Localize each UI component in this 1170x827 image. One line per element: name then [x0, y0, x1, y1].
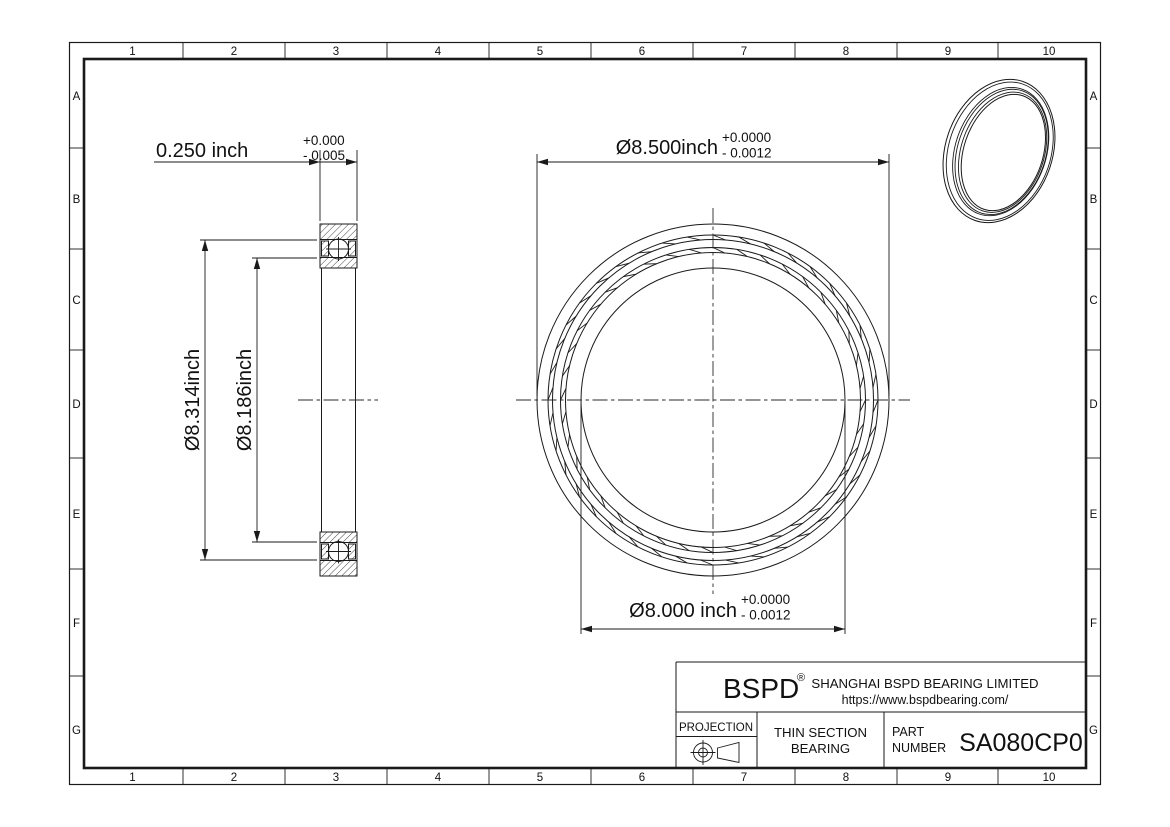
grid-row-label-left: E — [73, 509, 81, 521]
outer-diameter-lower-tolerance: - 0.0012 — [722, 146, 772, 161]
third-angle-projection-icon — [691, 740, 740, 765]
grid-row-label-left: G — [72, 725, 81, 737]
outer-raceway-text: Ø8.314inch — [182, 349, 204, 451]
width-lower-tolerance: - 0.005 — [303, 148, 345, 163]
isometric-view — [924, 64, 1073, 238]
outer-diameter-upper-tolerance: +0.0000 — [722, 130, 771, 145]
grid-column-label-top: 10 — [1043, 46, 1056, 58]
grid-row-label-left: B — [73, 194, 81, 206]
grid-row-label-left: F — [73, 618, 80, 630]
grid-row-label-right: A — [1090, 91, 1098, 103]
inner-raceway-text: Ø8.186inch — [234, 349, 256, 451]
grid-column-label-top: 6 — [639, 46, 645, 58]
product-type-line1: THIN SECTION — [774, 725, 867, 740]
drawing-canvas: 1122334455667788991010AABBCCDDEEFFGG — [0, 0, 1170, 827]
title-block: BSPD ® SHANGHAI BSPD BEARING LIMITED htt… — [676, 662, 1086, 768]
grid-column-label-bottom: 10 — [1043, 772, 1056, 784]
projection-label: PROJECTION — [679, 722, 753, 734]
grid-column-label-top: 7 — [741, 46, 747, 58]
company-website: https://www.bspdbearing.com/ — [842, 693, 1009, 707]
grid-column-label-bottom: 9 — [945, 772, 951, 784]
arrowhead — [581, 626, 592, 632]
ring-shoulder — [349, 241, 356, 256]
arrowhead — [202, 240, 208, 251]
grid-column-label-top: 1 — [129, 46, 135, 58]
grid-row-label-right: F — [1090, 618, 1097, 630]
registered-trademark-symbol: ® — [797, 672, 805, 684]
front-view — [516, 208, 910, 594]
part-number-value: SA080CP0 — [959, 729, 1083, 757]
grid-row-label-right: G — [1089, 725, 1098, 737]
company-logo: BSPD — [723, 673, 799, 704]
bore-diameter-lower-tolerance: - 0.0012 — [741, 608, 791, 623]
grid-column-label-top: 8 — [843, 46, 849, 58]
part-number-label-line1: PART — [892, 725, 925, 739]
arrowhead — [254, 258, 260, 269]
grid-column-label-bottom: 4 — [435, 772, 442, 784]
section-view — [298, 224, 378, 576]
grid-column-label-bottom: 8 — [843, 772, 849, 784]
grid-column-label-bottom: 7 — [741, 772, 747, 784]
company-name: SHANGHAI BSPD BEARING LIMITED — [811, 676, 1038, 691]
grid-column-label-bottom: 2 — [231, 772, 237, 784]
arrowhead — [202, 549, 208, 560]
part-number-label-line2: NUMBER — [892, 741, 946, 755]
grid-row-label-left: A — [73, 91, 81, 103]
bore-diameter-upper-tolerance: +0.0000 — [741, 592, 790, 607]
dimension-width: 0.250 inch +0.000 - 0.005 — [154, 133, 357, 221]
width-dimension-text: 0.250 inch — [156, 140, 248, 162]
bore-diameter-text: Ø8.000 inch — [629, 600, 737, 622]
grid-column-label-top: 4 — [435, 46, 442, 58]
grid-row-label-right: B — [1090, 194, 1098, 206]
grid-column-label-bottom: 6 — [639, 772, 645, 784]
grid-column-label-top: 2 — [231, 46, 237, 58]
grid-row-label-right: D — [1089, 399, 1097, 411]
arrowhead — [346, 159, 357, 165]
arrowhead — [878, 159, 889, 165]
grid-column-label-top: 3 — [333, 46, 339, 58]
arrowhead — [537, 159, 548, 165]
iso-bore-edge — [946, 83, 1060, 222]
grid-column-label-top: 9 — [945, 46, 951, 58]
outer-diameter-text: Ø8.500inch — [616, 137, 718, 159]
grid-row-label-left: D — [72, 399, 80, 411]
grid-row-label-right: C — [1089, 295, 1097, 307]
product-type-line2: BEARING — [791, 741, 850, 756]
width-upper-tolerance: +0.000 — [303, 133, 345, 148]
grid-column-label-bottom: 3 — [333, 772, 339, 784]
ring-shoulder — [322, 241, 329, 256]
grid-row-label-right: E — [1090, 509, 1098, 521]
grid-column-label-top: 5 — [537, 46, 543, 58]
grid-column-label-bottom: 5 — [537, 772, 543, 784]
arrowhead — [254, 531, 260, 542]
grid-row-label-left: C — [72, 295, 80, 307]
grid-column-label-bottom: 1 — [129, 772, 135, 784]
engineering-drawing-sheet: 1122334455667788991010AABBCCDDEEFFGG — [0, 0, 1170, 827]
arrowhead — [834, 626, 845, 632]
